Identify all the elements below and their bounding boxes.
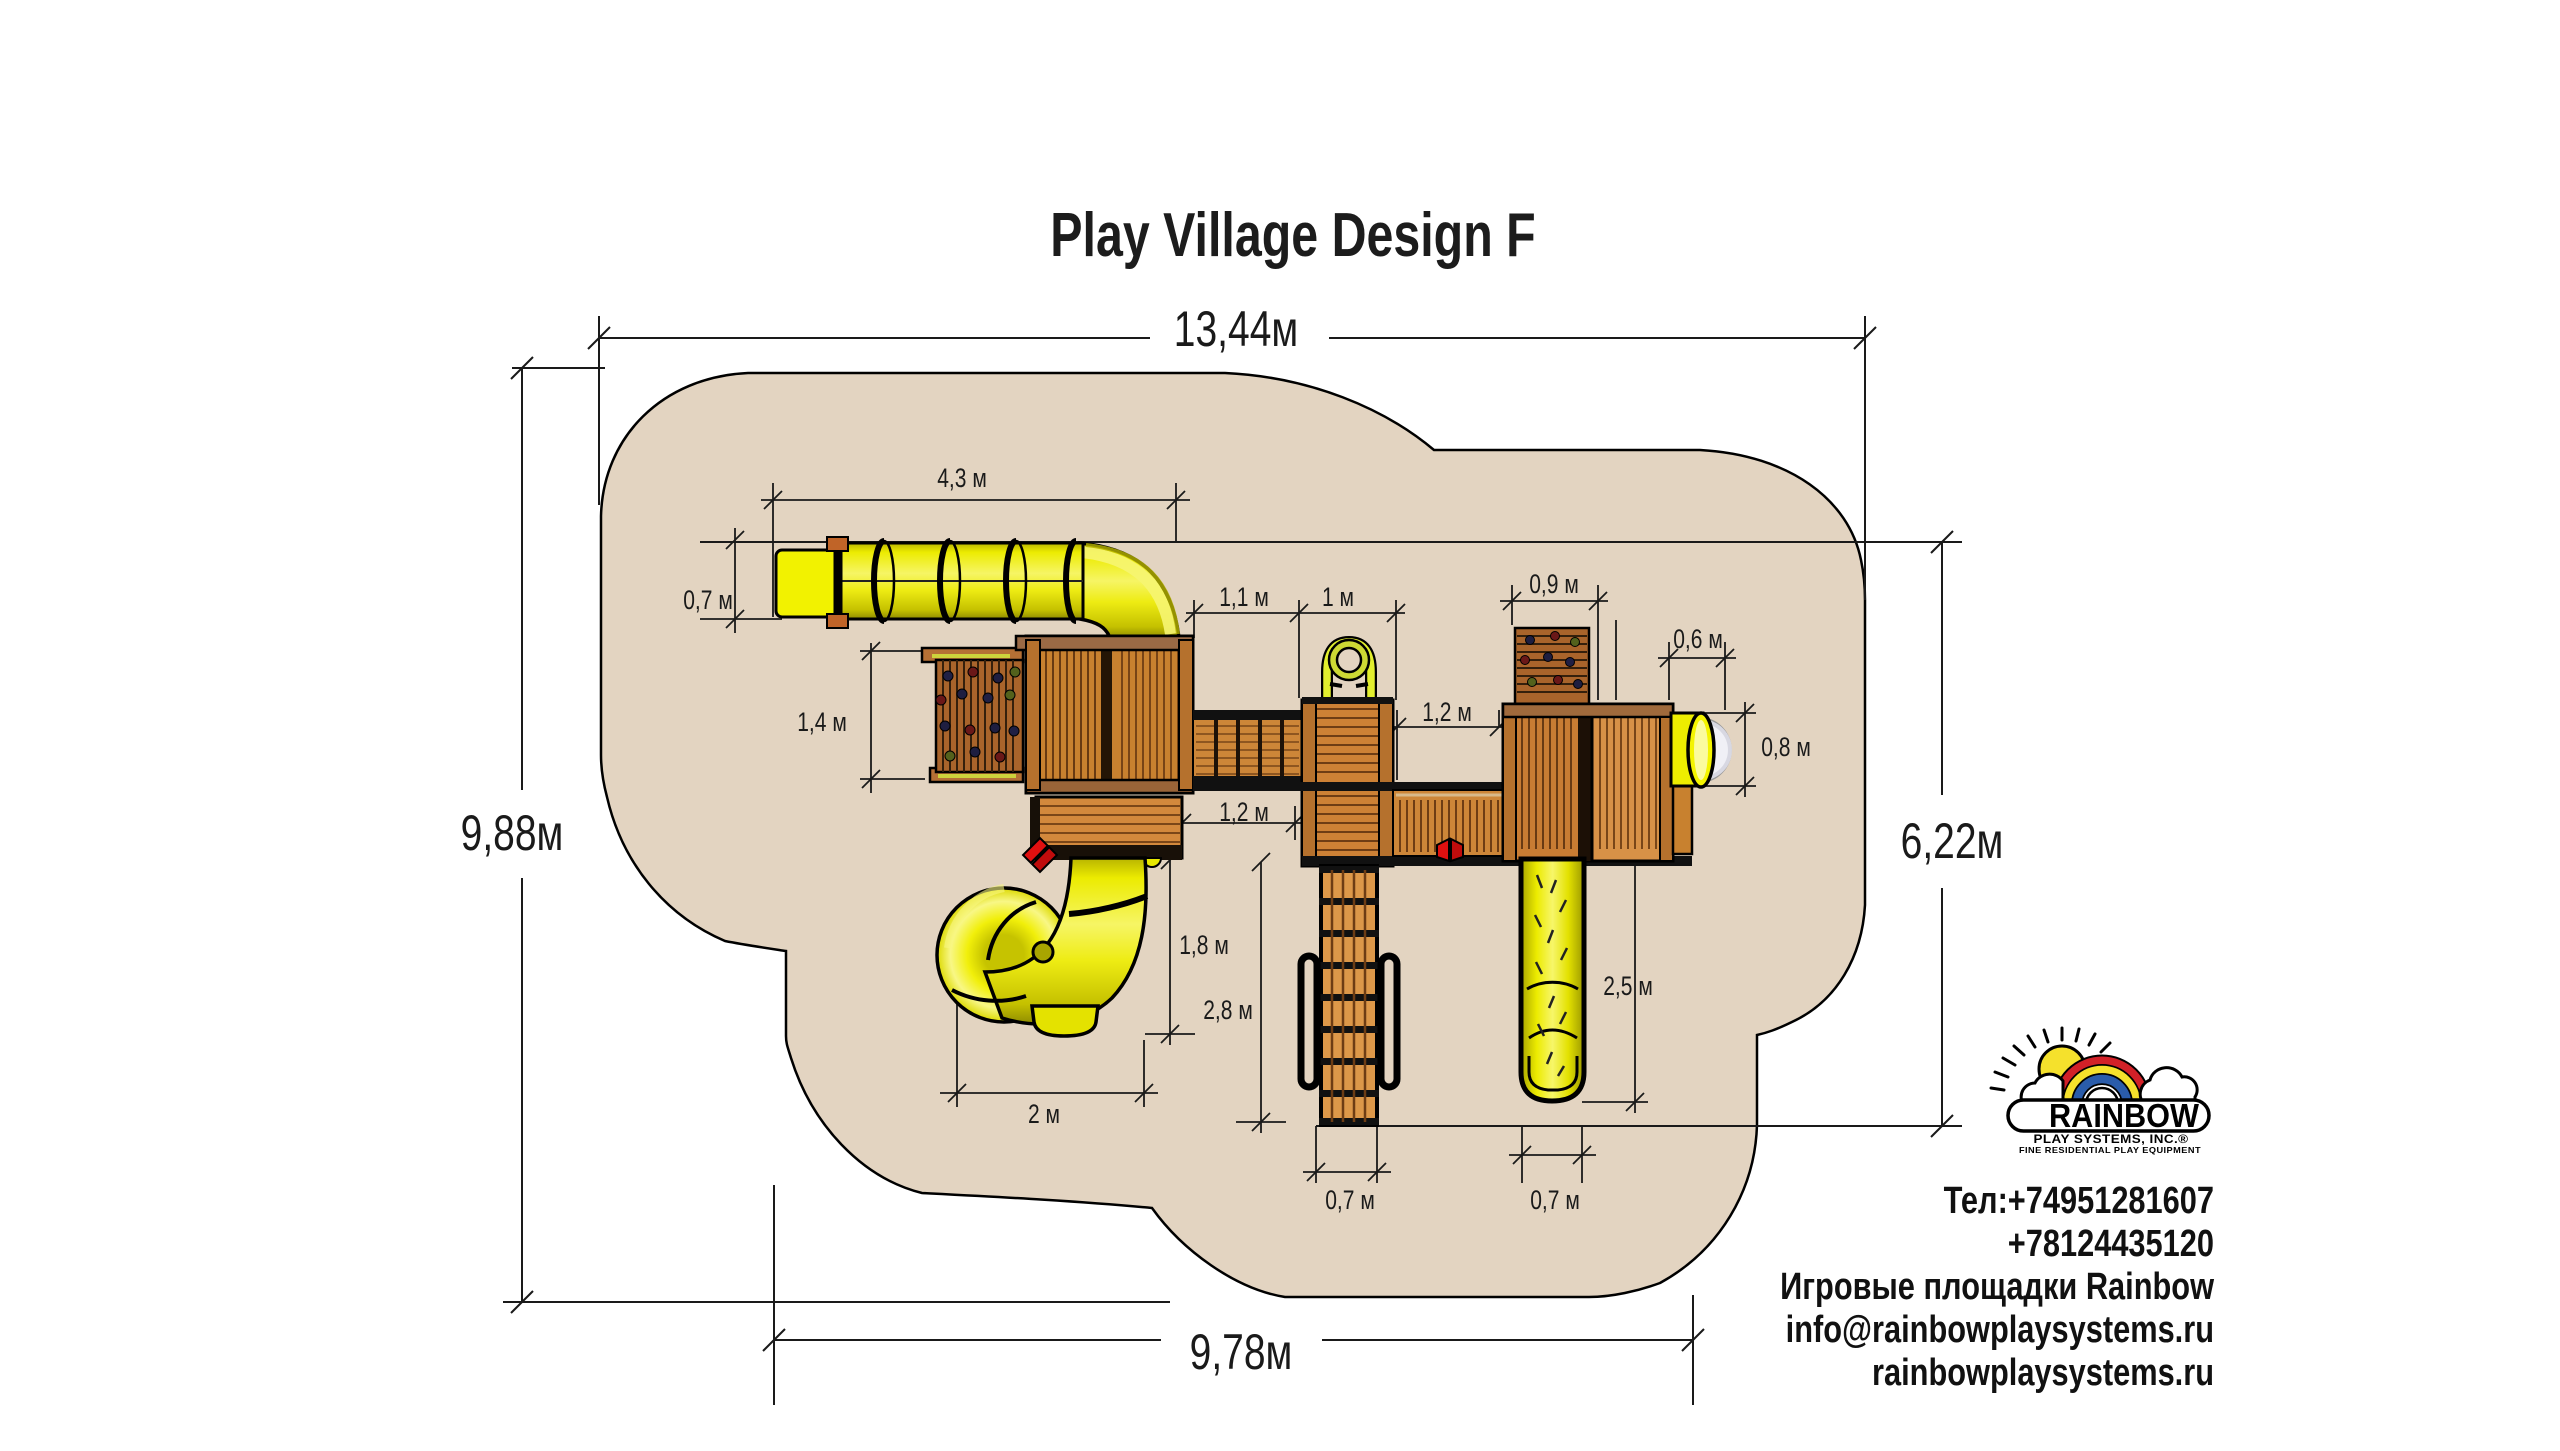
svg-text:+78124435120: +78124435120	[2008, 1223, 2214, 1265]
svg-text:info@rainbowplaysystems.ru: info@rainbowplaysystems.ru	[1786, 1309, 2214, 1351]
svg-text:4,3 м: 4,3 м	[937, 464, 987, 494]
svg-text:1,2 м: 1,2 м	[1422, 698, 1472, 728]
svg-text:1,4 м: 1,4 м	[797, 708, 847, 738]
svg-text:PLAY SYSTEMS, INC.®: PLAY SYSTEMS, INC.®	[2033, 1132, 2188, 1146]
svg-text:2 м: 2 м	[1028, 1100, 1060, 1130]
svg-text:0,7 м: 0,7 м	[1325, 1186, 1375, 1216]
svg-text:0,6 м: 0,6 м	[1673, 625, 1723, 655]
svg-text:0,7 м: 0,7 м	[1530, 1186, 1580, 1216]
svg-text:6,22м: 6,22м	[1901, 812, 2004, 869]
svg-text:2,5 м: 2,5 м	[1603, 972, 1653, 1002]
svg-text:RAINBOW: RAINBOW	[2049, 1097, 2200, 1134]
svg-text:FINE RESIDENTIAL PLAY EQUIPMEN: FINE RESIDENTIAL PLAY EQUIPMENT	[2019, 1146, 2201, 1155]
svg-text:rainbowplaysystems.ru: rainbowplaysystems.ru	[1872, 1352, 2214, 1394]
svg-text:1 м: 1 м	[1322, 583, 1354, 613]
svg-text:Игровые площадки Rainbow: Игровые площадки Rainbow	[1780, 1266, 2214, 1308]
svg-text:0,9 м: 0,9 м	[1529, 570, 1579, 600]
svg-text:0,7 м: 0,7 м	[683, 586, 733, 616]
svg-text:9,78м: 9,78м	[1190, 1323, 1293, 1380]
svg-text:9,88м: 9,88м	[461, 804, 564, 861]
svg-text:1,2 м: 1,2 м	[1219, 798, 1269, 828]
svg-text:2,8 м: 2,8 м	[1203, 996, 1253, 1026]
svg-text:0,8 м: 0,8 м	[1761, 733, 1811, 763]
svg-text:Play Village Design F: Play Village Design F	[1050, 200, 1535, 269]
svg-text:1,1 м: 1,1 м	[1219, 583, 1269, 613]
svg-text:Тел:+74951281607: Тел:+74951281607	[1944, 1180, 2214, 1222]
svg-text:13,44м: 13,44м	[1174, 300, 1298, 357]
svg-text:1,8 м: 1,8 м	[1179, 931, 1229, 961]
